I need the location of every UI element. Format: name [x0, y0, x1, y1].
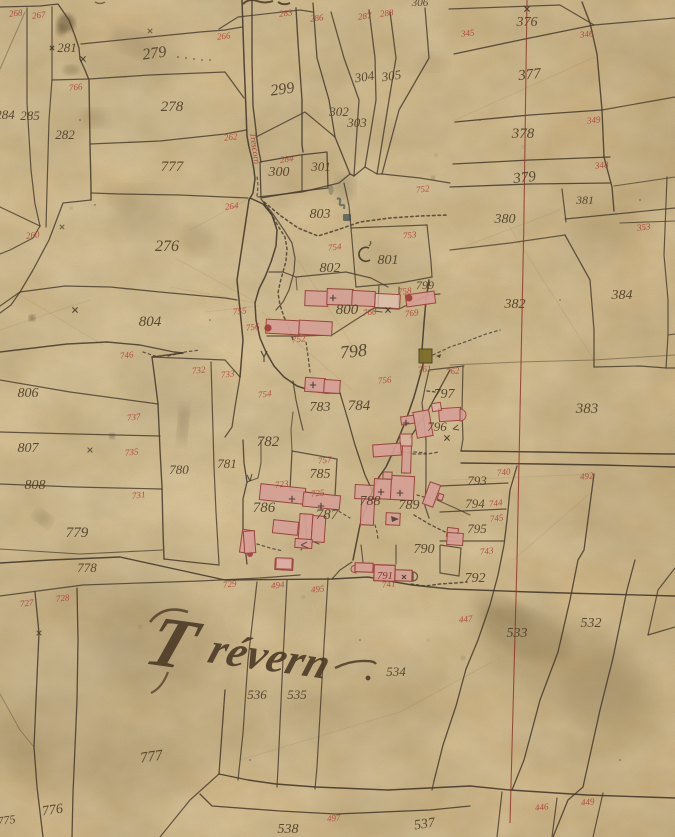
svg-text:494: 494 — [270, 579, 285, 590]
svg-text:806: 806 — [18, 386, 39, 401]
svg-text:780: 780 — [169, 462, 189, 477]
svg-text:260: 260 — [25, 229, 40, 240]
svg-text:795: 795 — [467, 521, 487, 536]
svg-text:446: 446 — [534, 801, 549, 812]
svg-text:781: 781 — [217, 456, 237, 471]
svg-text:804: 804 — [139, 314, 162, 330]
svg-text:305: 305 — [380, 67, 403, 85]
svg-text:737: 737 — [126, 411, 141, 422]
svg-text:790: 790 — [414, 542, 435, 557]
svg-text:741: 741 — [381, 578, 395, 589]
svg-text:379: 379 — [512, 169, 538, 187]
svg-text:787: 787 — [316, 507, 340, 523]
svg-text:800: 800 — [336, 302, 359, 318]
svg-text:284: 284 — [279, 153, 294, 164]
svg-text:725: 725 — [310, 487, 325, 498]
svg-text:279: 279 — [141, 43, 167, 63]
svg-text:382: 382 — [504, 297, 526, 312]
svg-text:353: 353 — [635, 221, 651, 233]
svg-text:264: 264 — [224, 200, 239, 211]
svg-text:346: 346 — [578, 28, 594, 40]
svg-text:753: 753 — [402, 229, 417, 240]
svg-text:785: 785 — [310, 467, 331, 482]
svg-text:288: 288 — [379, 7, 394, 18]
svg-text:345: 345 — [459, 27, 475, 39]
svg-text:796: 796 — [427, 419, 447, 434]
svg-text:776: 776 — [41, 802, 64, 820]
svg-text:380: 380 — [494, 212, 516, 227]
svg-text:769: 769 — [404, 307, 419, 318]
svg-text:536: 536 — [247, 687, 267, 702]
svg-text:756: 756 — [245, 321, 260, 332]
svg-text:792: 792 — [465, 571, 486, 586]
svg-text:755: 755 — [232, 305, 247, 316]
svg-text:376: 376 — [516, 15, 538, 30]
svg-text:266: 266 — [216, 30, 231, 41]
svg-text:766: 766 — [68, 81, 83, 92]
svg-text:757: 757 — [317, 454, 332, 465]
svg-text:268: 268 — [8, 7, 23, 18]
svg-text:495: 495 — [310, 583, 325, 594]
svg-text:797: 797 — [434, 387, 456, 402]
svg-text:349: 349 — [585, 114, 601, 126]
svg-text:754: 754 — [327, 241, 342, 252]
svg-text:761: 761 — [417, 363, 431, 374]
svg-text:286: 286 — [309, 12, 324, 23]
svg-text:447: 447 — [458, 613, 473, 624]
svg-text:301: 301 — [310, 159, 331, 174]
svg-text:348: 348 — [593, 159, 609, 171]
svg-text:306: 306 — [411, 0, 429, 9]
svg-text:383: 383 — [575, 401, 599, 417]
svg-text:533: 533 — [507, 626, 528, 641]
svg-text:278: 278 — [161, 99, 184, 115]
svg-text:284: 284 — [0, 107, 15, 122]
svg-text:532: 532 — [581, 616, 602, 631]
svg-text:740: 740 — [496, 466, 511, 477]
svg-text:754: 754 — [257, 388, 272, 399]
svg-text:743: 743 — [479, 545, 494, 556]
svg-text:492: 492 — [579, 470, 594, 481]
svg-text:262: 262 — [223, 131, 238, 142]
svg-text:758: 758 — [397, 285, 412, 296]
svg-text:300: 300 — [268, 165, 290, 180]
svg-text:777: 777 — [161, 159, 185, 175]
svg-text:783: 783 — [310, 400, 331, 415]
svg-text:497: 497 — [326, 812, 341, 823]
svg-text:778: 778 — [77, 560, 97, 575]
svg-text:732: 732 — [191, 364, 206, 375]
svg-text:793: 793 — [467, 473, 487, 488]
svg-text:808: 808 — [25, 478, 46, 493]
svg-text:302: 302 — [328, 104, 349, 119]
svg-text:538: 538 — [278, 822, 299, 837]
svg-text:731: 731 — [131, 489, 145, 500]
svg-text:788: 788 — [360, 494, 381, 509]
svg-text:746: 746 — [119, 349, 134, 360]
svg-text:803: 803 — [310, 207, 331, 222]
svg-text:775: 775 — [0, 812, 16, 828]
svg-text:807: 807 — [18, 441, 40, 456]
svg-text:283: 283 — [278, 7, 293, 18]
svg-text:534: 534 — [386, 664, 406, 679]
svg-text:752: 752 — [415, 183, 430, 194]
svg-text:384: 384 — [611, 288, 633, 303]
svg-text:752: 752 — [291, 333, 306, 344]
svg-text:799: 799 — [416, 278, 434, 292]
svg-text:378: 378 — [511, 126, 535, 142]
svg-text:745: 745 — [489, 512, 504, 523]
svg-text:727: 727 — [19, 597, 34, 608]
svg-text:276: 276 — [155, 238, 179, 255]
svg-text:762: 762 — [445, 365, 460, 376]
svg-text:777: 777 — [139, 747, 165, 766]
svg-text:282: 282 — [55, 127, 75, 142]
svg-text:537: 537 — [413, 816, 437, 834]
svg-text:729: 729 — [222, 578, 237, 589]
svg-text:798: 798 — [339, 340, 368, 363]
svg-text:535: 535 — [287, 687, 307, 702]
svg-text:789: 789 — [399, 498, 420, 513]
svg-text:756: 756 — [377, 374, 392, 385]
svg-text:786: 786 — [253, 500, 276, 516]
svg-text:281: 281 — [57, 40, 77, 55]
svg-text:784: 784 — [348, 398, 371, 414]
svg-text:267: 267 — [31, 9, 46, 20]
svg-text:303: 303 — [346, 115, 367, 130]
svg-text:744: 744 — [488, 497, 503, 508]
svg-text:377: 377 — [517, 66, 544, 85]
svg-text:779: 779 — [66, 525, 89, 541]
svg-text:802: 802 — [320, 261, 341, 276]
svg-text:794: 794 — [465, 496, 485, 511]
svg-text:723: 723 — [274, 478, 289, 489]
svg-text:449: 449 — [580, 796, 595, 807]
svg-text:760: 760 — [362, 306, 377, 317]
svg-text:782: 782 — [257, 434, 280, 450]
svg-text:801: 801 — [378, 253, 399, 268]
svg-text:285: 285 — [20, 108, 40, 123]
svg-text:735: 735 — [124, 446, 139, 457]
svg-text:381: 381 — [575, 193, 594, 207]
svg-text:287: 287 — [357, 10, 372, 21]
svg-text:728: 728 — [55, 592, 70, 603]
svg-text:304: 304 — [353, 68, 376, 86]
svg-text:299: 299 — [269, 79, 295, 99]
svg-text:733: 733 — [220, 368, 235, 379]
